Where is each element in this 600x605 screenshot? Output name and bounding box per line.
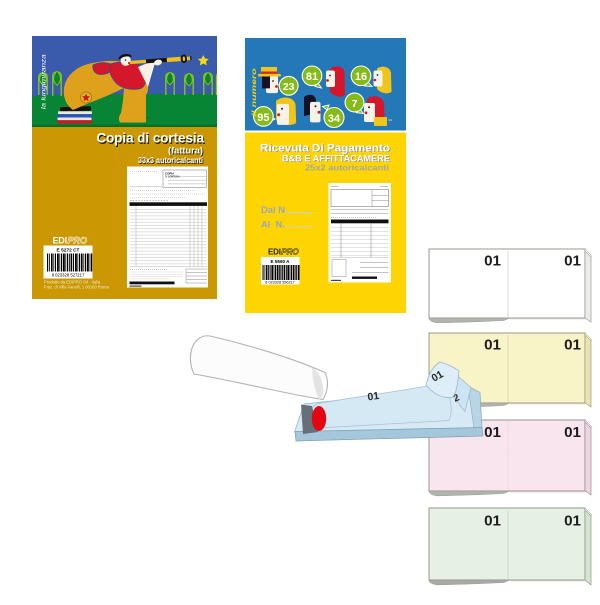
svg-text:la lungimiranza: la lungimiranza [41,54,48,109]
svg-text:01: 01 [484,337,501,354]
svg-text:01: 01 [367,390,380,404]
svg-text:01: 01 [484,253,501,270]
svg-text:8 023328 527217: 8 023328 527217 [52,273,85,278]
svg-text:DI CORTESIA: DI CORTESIA [165,176,180,179]
svg-text:SG: SG [146,116,151,120]
svg-text:Dal N.: Dal N. [261,204,288,215]
svg-text:7: 7 [352,98,358,110]
svg-text:16: 16 [355,71,367,83]
svg-text:33x3 autoricalcanti: 33x3 autoricalcanti [138,155,203,165]
svg-text:EDI: EDI [53,235,67,245]
svg-text:PRO: PRO [281,247,299,256]
svg-text:Al: Al [261,218,270,229]
svg-text:Fraz. di Villa Fanelli, 1 0016: Fraz. di Villa Fanelli, 1 00160 Roma [44,285,109,290]
svg-text:8 023328 556217: 8 023328 556217 [265,280,295,284]
svg-text:34: 34 [328,113,341,125]
svg-text:01: 01 [484,513,501,530]
svg-text:B&B E AFFITTACAMERE: B&B E AFFITTACAMERE [282,153,390,163]
svg-text:E 5560 A: E 5560 A [271,259,291,264]
svg-text:25x2 autoricalcanti: 25x2 autoricalcanti [305,164,389,173]
svg-text:N.: N. [276,218,285,229]
svg-text:Copia di cortesia: Copia di cortesia [97,130,205,146]
svg-text:01: 01 [564,424,581,441]
svg-text:95: 95 [257,112,269,124]
svg-text:01: 01 [564,513,581,530]
svg-text:01: 01 [484,424,501,441]
svg-text:EDI: EDI [268,247,281,256]
svg-text:(fattura): (fattura) [168,145,203,155]
svg-text:01: 01 [564,337,581,354]
svg-text:E 5272 CT: E 5272 CT [57,247,80,253]
svg-text:COPIA: COPIA [165,171,175,175]
svg-text:PRO: PRO [68,235,88,245]
svg-text:SG: SG [388,118,393,122]
svg-text:01: 01 [564,253,581,270]
svg-text:23: 23 [283,81,295,93]
svg-text:81: 81 [306,71,318,83]
svg-text:il numero: il numero [251,68,258,116]
